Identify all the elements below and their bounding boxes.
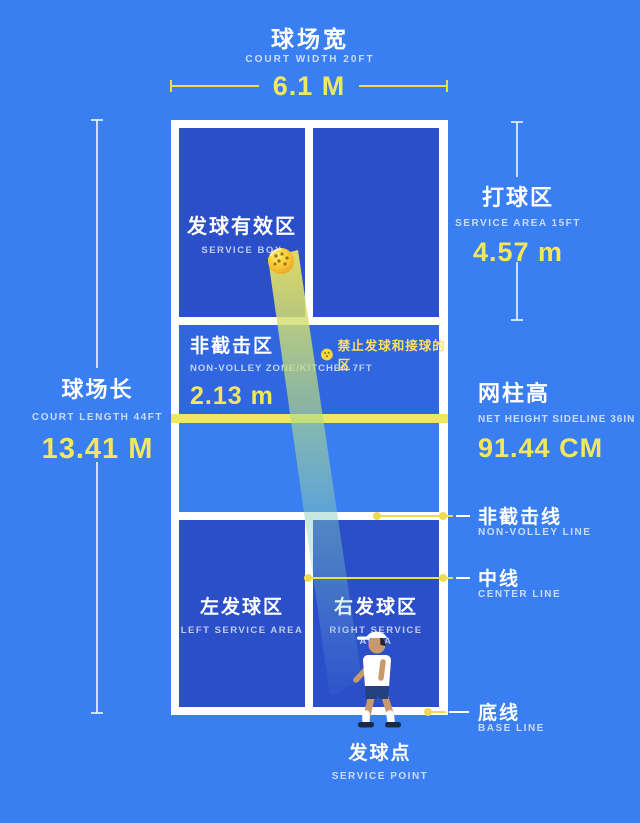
service-area-subtitle: SERVICE AREA 15FT [448, 218, 588, 229]
court-length-line-upper [96, 120, 98, 368]
court-length-title: 球场长 [20, 372, 175, 404]
court-width-title: 球场宽 [160, 20, 460, 54]
measure-line-left [172, 85, 259, 87]
left-service-area-title: 左发球区 [179, 592, 305, 619]
left-service-area-label: 左发球区 LEFT SERVICE AREA [179, 592, 305, 636]
service-point-subtitle: SERVICE POINT [310, 771, 450, 782]
base-line-callout-line [428, 711, 446, 713]
net-height-title: 网柱高 [478, 376, 638, 408]
court-length-subtitle: COURT LENGTH 44FT [20, 412, 175, 423]
mini-ball-icon [321, 348, 333, 361]
court-length-tick-bottom [91, 712, 103, 714]
non-volley-line-subtitle: NON-VOLLEY LINE [478, 527, 591, 538]
service-point-label: 发球点 SERVICE POINT [310, 738, 450, 782]
center-line-callout-line [308, 577, 453, 579]
pickleball-icon [267, 247, 295, 275]
base-line-subtitle: BASE LINE [478, 723, 545, 734]
court-length-line-lower [96, 462, 98, 713]
service-area-tick-top [511, 121, 523, 123]
base-line-callout-dash [449, 711, 469, 713]
measure-line-right [359, 85, 446, 87]
court-width-measure: 6.1 M [170, 72, 448, 100]
non-volley-line-title: 非截击线 [478, 502, 562, 529]
non-volley-callout-line [377, 515, 453, 517]
net-height-label: 网柱高 NET HEIGHT SIDELINE 36IN 91.44 CM [478, 376, 638, 464]
net-height-subtitle: NET HEIGHT SIDELINE 36IN [478, 414, 638, 425]
center-line-callout-dash [456, 577, 470, 579]
service-area-line-upper [516, 122, 518, 177]
service-area-tick-bottom [511, 319, 523, 321]
pickleball-court-infographic: 球场宽 COURT WIDTH 20FT 6.1 M 发球有效区 SERVICE… [0, 0, 640, 823]
court-length-tick-top [91, 119, 103, 121]
service-area-line-lower [516, 262, 518, 320]
base-line-title: 底线 [478, 698, 520, 725]
non-volley-callout-dash [456, 515, 470, 517]
court-length-value: 13.41 M [20, 433, 175, 466]
measure-tick-right [446, 80, 448, 92]
court-width-value: 6.1 M [273, 71, 346, 102]
center-line-subtitle: CENTER LINE [478, 589, 561, 600]
service-box-right [313, 128, 439, 317]
service-area-title: 打球区 [448, 180, 588, 212]
service-area-value: 4.57 m [448, 237, 588, 268]
service-area-label: 打球区 SERVICE AREA 15FT 4.57 m [448, 180, 588, 268]
court-length-label: 球场长 COURT LENGTH 44FT 13.41 M [20, 372, 175, 466]
kitchen-note-text: 禁止发球和接球的区 [338, 335, 448, 373]
service-box-title: 发球有效区 [179, 210, 305, 239]
center-line-title: 中线 [478, 564, 520, 591]
kitchen-note: 禁止发球和接球的区 [321, 335, 448, 373]
service-point-title: 发球点 [310, 738, 450, 765]
net-height-value: 91.44 CM [478, 433, 638, 464]
kitchen-depth-value: 2.13 m [190, 382, 373, 411]
player-figure [346, 628, 408, 730]
court-width-subtitle: COURT WIDTH 20FT [160, 54, 460, 65]
left-service-area-subtitle: LEFT SERVICE AREA [179, 625, 305, 636]
